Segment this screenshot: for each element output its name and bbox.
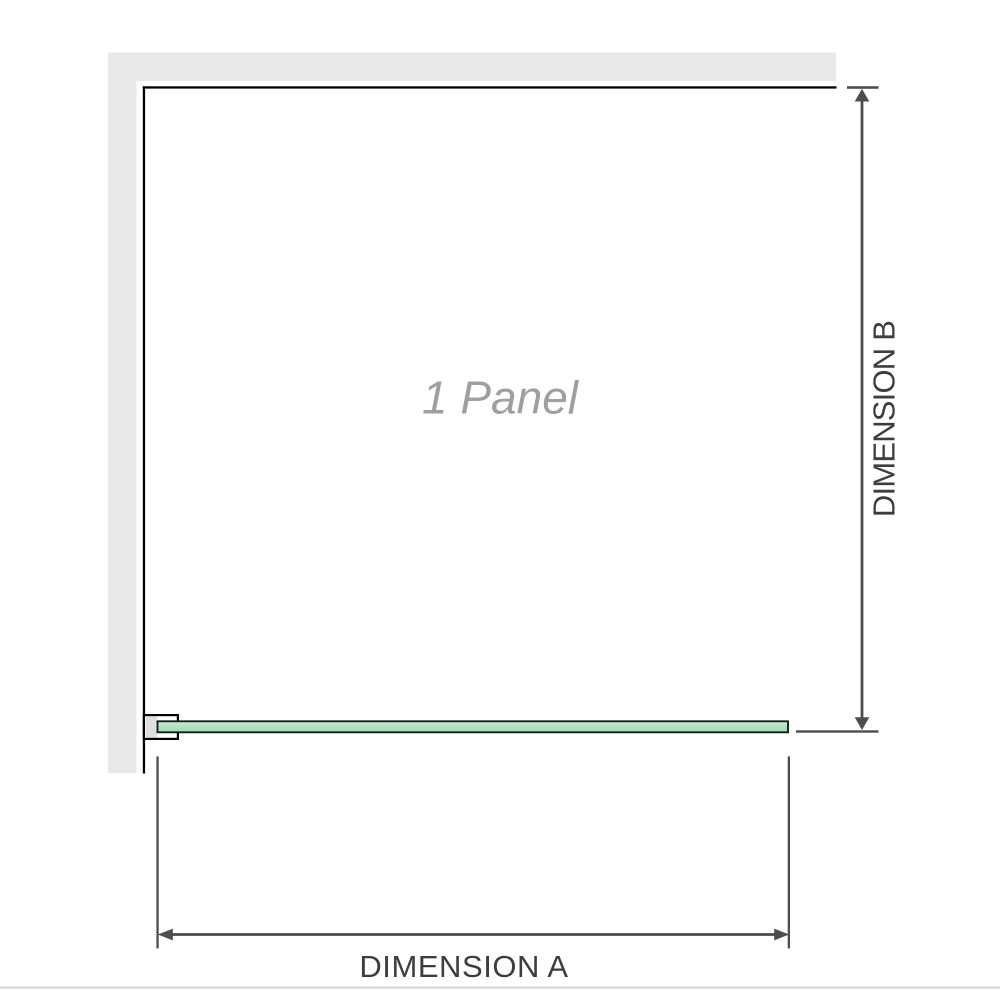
svg-text:1 Panel: 1 Panel [422, 372, 580, 424]
svg-text:DIMENSION B: DIMENSION B [867, 321, 902, 517]
svg-text:DIMENSION A: DIMENSION A [359, 949, 568, 984]
